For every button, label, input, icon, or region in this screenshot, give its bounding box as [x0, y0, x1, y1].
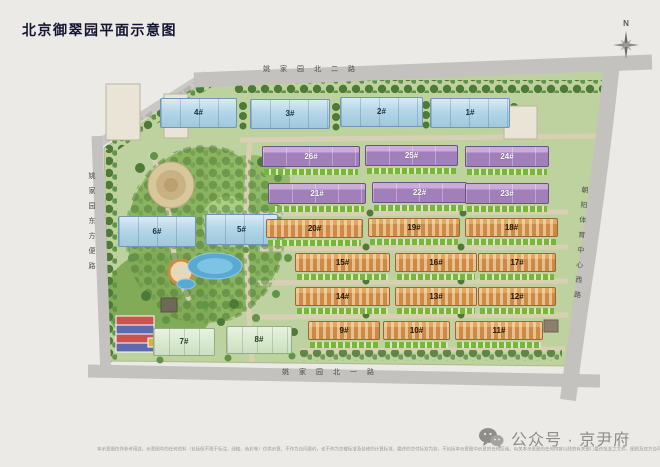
building-21: 21# [268, 183, 366, 204]
wechat-account: 公众号 · 京尹府 [478, 426, 630, 450]
building-22: 22# [372, 182, 467, 203]
building-3: 3# [250, 99, 330, 129]
wechat-icon [478, 427, 504, 449]
road-label-north: 姚家园北二路 [263, 64, 365, 74]
building-19: 19# [368, 218, 460, 237]
compass-star-icon [612, 29, 640, 61]
building-20: 20# [266, 219, 363, 238]
building-7: 7# [153, 328, 215, 356]
building-14: 14# [295, 287, 390, 306]
building-6: 6# [118, 216, 196, 247]
building-2: 2# [340, 97, 423, 127]
building-4: 4# [160, 98, 237, 128]
building-10: 10# [383, 321, 450, 340]
road-label-south: 姚家园北一路 [282, 367, 384, 377]
building-11: 11# [455, 321, 543, 340]
building-16: 16# [395, 253, 477, 272]
building-15: 15# [295, 253, 390, 272]
building-25: 25# [365, 145, 458, 166]
building-1: 1# [430, 98, 510, 128]
building-12: 12# [478, 287, 556, 306]
building-8: 8# [226, 326, 292, 354]
road-label-west: 姚家园东方便路 [86, 172, 96, 277]
wechat-account-name: 公众号 · 京尹府 [511, 426, 630, 450]
building-23: 23# [465, 183, 549, 204]
building-26: 26# [262, 146, 360, 167]
compass-north-label: N [612, 20, 640, 28]
building-9: 9# [308, 321, 380, 340]
building-17: 17# [478, 253, 556, 272]
building-18: 18# [465, 218, 558, 237]
compass: N [612, 20, 640, 66]
page-title: 北京御翠园平面示意图 [22, 20, 177, 40]
site-plan: 北京御翠园平面示意图 N 姚家园北二路 姚家园北一路 姚家园东方便路 朝阳体育中… [0, 0, 660, 467]
kindergarten [116, 316, 157, 352]
building-13: 13# [395, 287, 477, 306]
building-24: 24# [465, 146, 549, 167]
